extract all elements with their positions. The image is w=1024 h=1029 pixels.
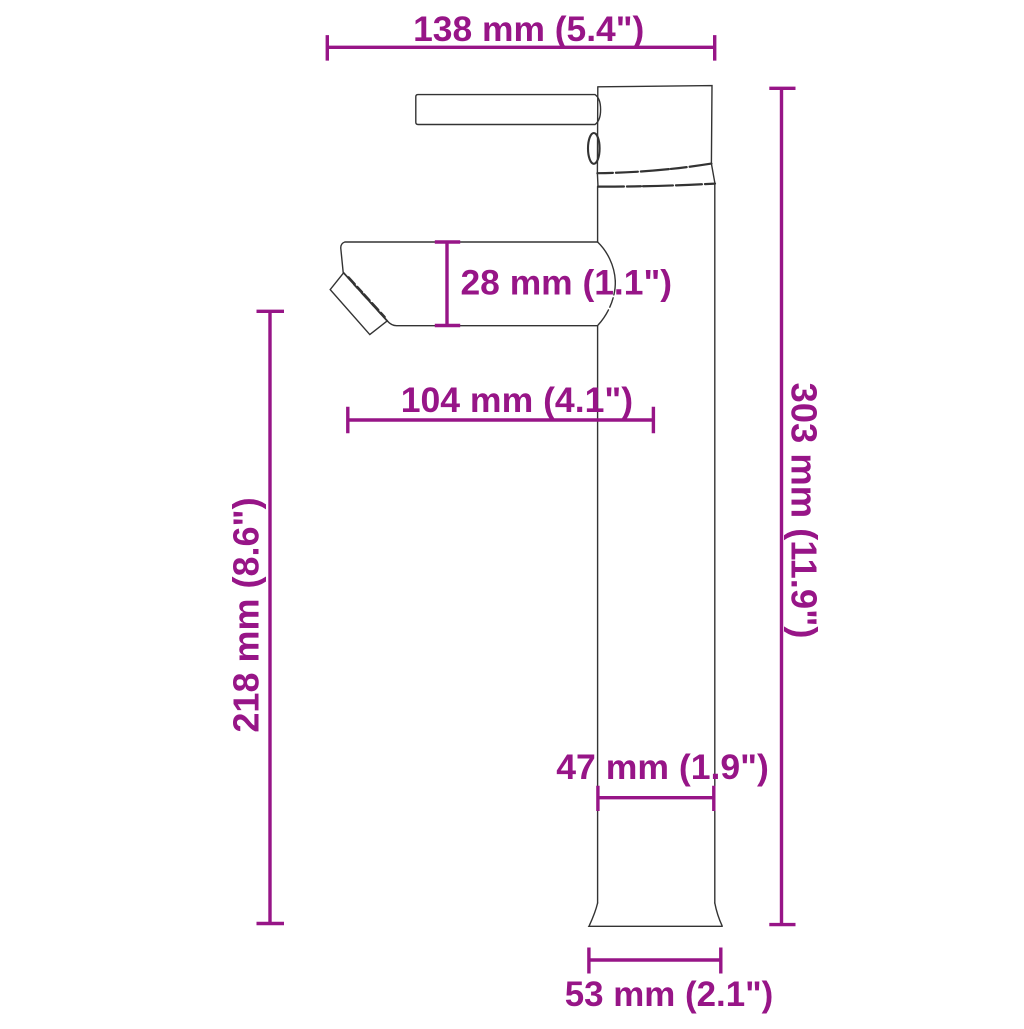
svg-text:138 mm (5.4"): 138 mm (5.4") xyxy=(413,9,644,49)
svg-text:104 mm (4.1"): 104 mm (4.1") xyxy=(401,380,633,420)
svg-text:47 mm (1.9"): 47 mm (1.9") xyxy=(556,747,769,787)
svg-text:218 mm (8.6"): 218 mm (8.6") xyxy=(226,497,267,732)
svg-text:303 mm (11.9"): 303 mm (11.9") xyxy=(784,383,825,639)
svg-text:53 mm (2.1"): 53 mm (2.1") xyxy=(565,975,774,1014)
svg-text:28 mm (1.1"): 28 mm (1.1") xyxy=(461,262,673,302)
